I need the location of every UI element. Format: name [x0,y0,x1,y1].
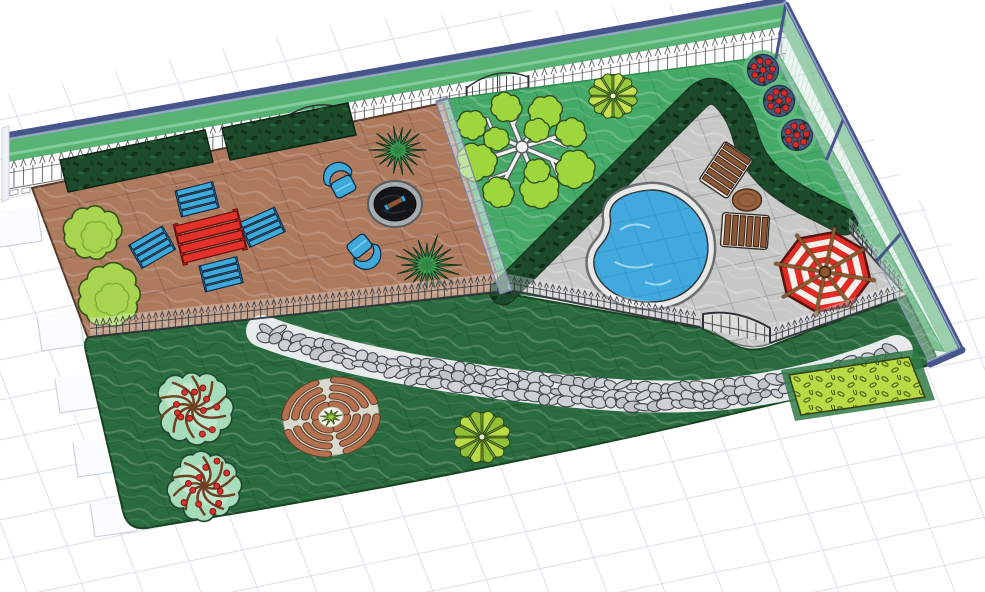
fan-palm[interactable] [589,74,637,118]
fan-shrub[interactable] [454,411,510,462]
round-table[interactable] [733,189,762,211]
garden-plan: Backyard garden landscape plan — hand-dr… [0,0,985,592]
sun-lounger[interactable] [720,212,769,249]
fence-end-cap [2,126,9,202]
fire-pit[interactable] [368,181,422,227]
garden-plan-stage: Backyard garden landscape plan — hand-dr… [0,0,985,592]
